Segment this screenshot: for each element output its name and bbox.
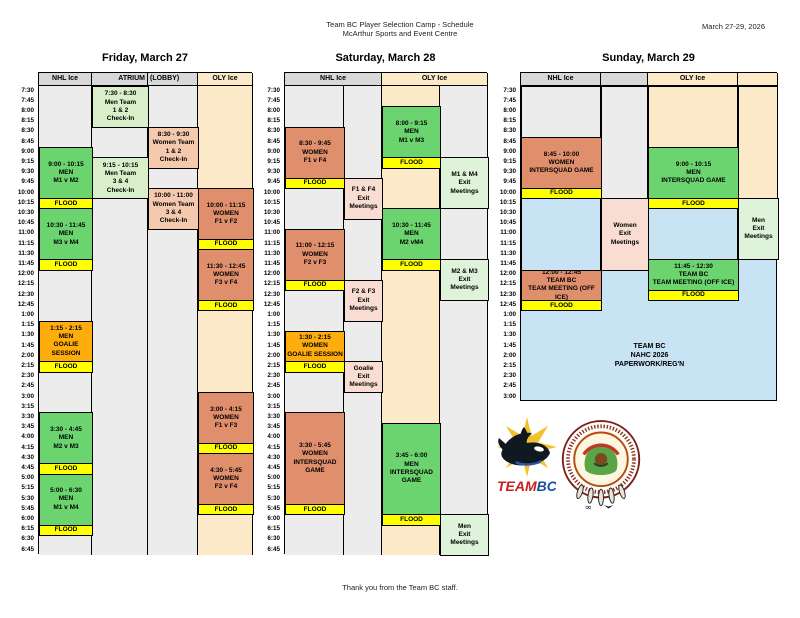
time-label: 9:30 <box>259 167 280 177</box>
time-label: 7:30 <box>495 85 516 95</box>
day-title-sunday: Sunday, March 29 <box>480 52 800 64</box>
time-label: 2:45 <box>13 381 34 391</box>
schedule-block: MenExitMeetings <box>440 514 489 556</box>
schedule-block: 5:00 - 6:30MENM1 v M4 <box>39 474 93 526</box>
time-label: 2:15 <box>13 360 34 370</box>
time-label: 10:45 <box>495 218 516 228</box>
time-label: 2:15 <box>495 360 516 370</box>
time-label: 3:00 <box>495 391 516 401</box>
time-label: 4:45 <box>259 462 280 472</box>
time-label: 3:45 <box>259 422 280 432</box>
schedule-block: 10:30 - 11:45MENM2 vM4 <box>382 208 441 260</box>
schedule-block: GoalieExitMeetings <box>344 361 383 393</box>
time-label: 1:00 <box>259 309 280 319</box>
time-label: 9:45 <box>259 177 280 187</box>
schedule-block: 9:00 - 10:15MENINTERSQUAD GAME <box>648 147 739 199</box>
time-label: 6:45 <box>259 544 280 554</box>
time-label: 10:00 <box>13 187 34 197</box>
time-label-column: 7:307:458:008:158:308:459:009:159:309:45… <box>497 85 518 401</box>
time-label: 5:45 <box>13 503 34 513</box>
nation-crest-logo-icon: ∞ <box>558 419 644 511</box>
time-label: 3:45 <box>13 422 34 432</box>
time-label: 8:45 <box>495 136 516 146</box>
schedule-block: 8:30 - 9:45WOMENF1 v F4 <box>285 127 345 179</box>
time-label: 12:30 <box>259 289 280 299</box>
time-label: 5:30 <box>13 493 34 503</box>
time-label: 9:00 <box>259 146 280 156</box>
schedule-block: 10:00 - 11:00Women Team3 & 4Check-In <box>148 188 199 230</box>
schedule-block: 9:15 - 10:15Men Team3 & 4Check-In <box>92 157 149 199</box>
time-label: 4:30 <box>13 452 34 462</box>
time-label: 8:00 <box>259 105 280 115</box>
time-label: 8:15 <box>13 116 34 126</box>
time-label: 1:15 <box>13 320 34 330</box>
time-label: 7:30 <box>259 85 280 95</box>
time-label: 5:30 <box>259 493 280 503</box>
time-label: 10:15 <box>495 197 516 207</box>
time-label: 8:30 <box>259 126 280 136</box>
time-label: 10:30 <box>13 207 34 217</box>
schedule-block: 11:00 - 12:15WOMENF2 v F3 <box>285 229 345 281</box>
day-panel-friday: NHL IceATRIUM(LOBBY)OLY Ice7:30 - 8:30Me… <box>38 72 252 554</box>
time-label: 9:15 <box>259 156 280 166</box>
time-label: 11:45 <box>13 258 34 268</box>
flood-block: FLOOD <box>285 504 345 515</box>
time-label: 9:00 <box>495 146 516 156</box>
time-label: 11:15 <box>13 238 34 248</box>
schedule-block: 8:30 - 9:30Women Team1 & 2Check-In <box>148 127 199 169</box>
time-label: 2:00 <box>495 350 516 360</box>
teambc-wordmark: TEAMBC <box>497 478 556 494</box>
schedule-block: 8:45 - 10:00WOMENINTERSQUAD GAME <box>521 137 602 189</box>
flood-block: FLOOD <box>198 504 254 515</box>
time-label: 4:00 <box>13 432 34 442</box>
flood-block: FLOOD <box>648 290 739 301</box>
time-label: 10:15 <box>259 197 280 207</box>
time-label: 11:15 <box>259 238 280 248</box>
time-label: 1:45 <box>495 340 516 350</box>
flood-block: FLOOD <box>39 361 93 372</box>
schedule-block: F2 & F3ExitMeetings <box>344 280 383 322</box>
time-label: 11:45 <box>495 258 516 268</box>
time-label: 3:30 <box>259 411 280 421</box>
time-label: 4:00 <box>259 432 280 442</box>
time-label: 8:15 <box>259 116 280 126</box>
time-label: 11:45 <box>259 258 280 268</box>
time-label: 12:15 <box>13 279 34 289</box>
background-segment <box>738 86 778 199</box>
schedule-block: 3:30 - 5:45WOMENINTERSQUADGAME <box>285 412 345 505</box>
schedule-block: 9:00 - 10:15MENM1 v M2 <box>39 147 93 199</box>
column-header: NHL Ice <box>285 73 382 86</box>
time-label-column: 7:307:458:008:158:308:459:009:159:309:45… <box>261 85 282 554</box>
schedule-block: M1 & M4ExitMeetings <box>440 157 489 209</box>
column-header: OLY Ice <box>198 73 253 86</box>
background-segment <box>521 198 601 270</box>
time-label: 1:30 <box>495 330 516 340</box>
schedule-block: 1:30 - 2:15WOMENGOALIE SESSION <box>285 331 345 363</box>
time-label: 12:15 <box>259 279 280 289</box>
time-label: 5:15 <box>259 483 280 493</box>
background-segment <box>648 86 738 148</box>
column-header: OLY Ice <box>382 73 488 86</box>
schedule-page: Team BC Player Selection Camp - Schedule… <box>0 0 800 618</box>
column-header: (LOBBY) <box>148 73 198 86</box>
time-label: 10:30 <box>495 207 516 217</box>
column-header: OLY Ice <box>648 73 738 86</box>
flood-block: FLOOD <box>382 157 441 168</box>
background-segment <box>521 86 601 138</box>
time-label: 3:15 <box>259 401 280 411</box>
time-label-column: 7:307:458:008:158:308:459:009:159:309:45… <box>15 85 36 554</box>
time-label: 11:30 <box>13 248 34 258</box>
column-header: NHL Ice <box>39 73 92 86</box>
time-label: 2:45 <box>259 381 280 391</box>
time-label: 6:30 <box>13 534 34 544</box>
time-label: 10:00 <box>259 187 280 197</box>
column-header: ATRIUM <box>92 73 148 86</box>
time-label: 3:30 <box>13 411 34 421</box>
time-label: 10:30 <box>259 207 280 217</box>
time-label: 3:00 <box>13 391 34 401</box>
schedule-block: WomenExitMeetings <box>601 198 649 270</box>
grid-column <box>92 86 148 555</box>
day-panel-saturday: NHL IceOLY Ice8:00 - 9:15MENM1 v M38:30 … <box>284 72 487 554</box>
time-label: 1:15 <box>259 320 280 330</box>
time-label: 8:30 <box>495 126 516 136</box>
time-label: 8:15 <box>495 116 516 126</box>
time-label: 8:00 <box>13 105 34 115</box>
time-label: 11:00 <box>495 228 516 238</box>
svg-text:∞: ∞ <box>585 503 592 511</box>
time-label: 7:45 <box>13 95 34 105</box>
time-label: 1:45 <box>13 340 34 350</box>
time-label: 3:00 <box>259 391 280 401</box>
time-label: 8:30 <box>13 126 34 136</box>
time-label: 7:45 <box>495 95 516 105</box>
time-label: 12:30 <box>495 289 516 299</box>
time-label: 4:30 <box>259 452 280 462</box>
time-label: 10:00 <box>495 187 516 197</box>
schedule-block: 4:30 - 5:45WOMENF2 v F4 <box>198 453 254 505</box>
time-label: 1:45 <box>259 340 280 350</box>
flood-block: FLOOD <box>521 300 602 311</box>
schedule-block: 10:00 - 11:15WOMENF1 v F2 <box>198 188 254 240</box>
schedule-block: 11:30 - 12:45WOMENF3 v F4 <box>198 249 254 301</box>
time-label: 9:45 <box>495 177 516 187</box>
flood-block: FLOOD <box>382 514 441 525</box>
time-label: 5:45 <box>259 503 280 513</box>
time-label: 10:15 <box>13 197 34 207</box>
time-label: 12:00 <box>13 269 34 279</box>
teambc-logo-icon: TEAMBC <box>494 417 556 495</box>
time-label: 2:30 <box>259 371 280 381</box>
time-label: 6:45 <box>13 544 34 554</box>
flood-block: FLOOD <box>648 198 739 209</box>
time-label: 10:45 <box>13 218 34 228</box>
time-label: 1:00 <box>13 309 34 319</box>
time-label: 6:15 <box>259 524 280 534</box>
flood-block: FLOOD <box>285 361 345 372</box>
time-label: 6:00 <box>13 513 34 523</box>
time-label: 6:15 <box>13 524 34 534</box>
schedule-block: 12:00 - 12:45TEAM BCTEAM MEETING (OFF IC… <box>521 270 602 302</box>
time-label: 12:45 <box>259 299 280 309</box>
day-panel-sunday: NHL IceOLY Ice8:45 - 10:00WOMENINTERSQUA… <box>520 72 777 401</box>
time-label: 11:15 <box>495 238 516 248</box>
schedule-block: 11:45 - 12:30TEAM BCTEAM MEETING (OFF IC… <box>648 259 739 291</box>
time-label: 4:15 <box>13 442 34 452</box>
column-header <box>601 73 648 86</box>
time-label: 12:15 <box>495 279 516 289</box>
flood-block: FLOOD <box>285 280 345 291</box>
schedule-block: M2 & M3ExitMeetings <box>440 259 489 301</box>
time-label: 1:30 <box>259 330 280 340</box>
document-title-line2: McArthur Sports and Event Centre <box>200 29 600 38</box>
schedule-block: 7:30 - 8:30Men Team1 & 2Check-In <box>92 86 149 128</box>
column-header: NHL Ice <box>521 73 601 86</box>
background-segment <box>601 86 648 199</box>
time-label: 7:30 <box>13 85 34 95</box>
schedule-block: 10:30 - 11:45MENM3 v M4 <box>39 208 93 260</box>
time-label: 7:45 <box>259 95 280 105</box>
time-label: 4:45 <box>13 462 34 472</box>
flood-block: FLOOD <box>39 525 93 536</box>
flood-block: FLOOD <box>198 300 254 311</box>
footer-note: Thank you from the Team BC staff. <box>250 583 550 592</box>
time-label: 5:00 <box>259 473 280 483</box>
time-label: 12:30 <box>13 289 34 299</box>
time-label: 5:15 <box>13 483 34 493</box>
time-label: 2:00 <box>259 350 280 360</box>
schedule-block: 3:45 - 6:00MENINTERSQUADGAME <box>382 423 441 516</box>
time-label: 3:15 <box>13 401 34 411</box>
time-label: 11:30 <box>259 248 280 258</box>
column-header <box>738 73 778 86</box>
flood-block: FLOOD <box>382 259 441 270</box>
time-label: 2:30 <box>495 371 516 381</box>
time-label: 9:45 <box>13 177 34 187</box>
schedule-block: F1 & F4ExitMeetings <box>344 178 383 220</box>
time-label: 1:15 <box>495 320 516 330</box>
time-label: 9:15 <box>495 156 516 166</box>
time-label: 4:15 <box>259 442 280 452</box>
schedule-block: MenExitMeetings <box>738 198 779 260</box>
time-label: 2:30 <box>13 371 34 381</box>
time-label: 12:00 <box>259 269 280 279</box>
time-label: 2:45 <box>495 381 516 391</box>
time-label: 1:00 <box>495 309 516 319</box>
time-label: 9:30 <box>495 167 516 177</box>
flood-block: FLOOD <box>521 188 602 199</box>
time-label: 11:00 <box>13 228 34 238</box>
time-label: 11:30 <box>495 248 516 258</box>
time-label: 8:00 <box>495 105 516 115</box>
schedule-block: 3:30 - 4:45MENM2 v M3 <box>39 412 93 464</box>
time-label: 5:00 <box>13 473 34 483</box>
document-title-line1: Team BC Player Selection Camp - Schedule <box>200 20 600 29</box>
document-date-range: March 27-29, 2026 <box>640 22 765 31</box>
time-label: 8:45 <box>259 136 280 146</box>
time-label: 2:15 <box>259 360 280 370</box>
document-title: Team BC Player Selection Camp - Schedule… <box>200 20 600 38</box>
grid-column <box>440 86 488 555</box>
background-segment <box>648 208 738 260</box>
time-label: 12:45 <box>495 299 516 309</box>
time-label: 9:15 <box>13 156 34 166</box>
time-label: 8:45 <box>13 136 34 146</box>
time-label: 6:30 <box>259 534 280 544</box>
time-label: 11:00 <box>259 228 280 238</box>
schedule-block: 1:15 - 2:15MENGOALIE SESSION <box>39 321 93 363</box>
time-label: 9:30 <box>13 167 34 177</box>
time-label: 1:30 <box>13 330 34 340</box>
time-label: 12:00 <box>495 269 516 279</box>
time-label: 10:45 <box>259 218 280 228</box>
flood-block: FLOOD <box>285 178 345 189</box>
time-label: 6:00 <box>259 513 280 523</box>
schedule-block: 8:00 - 9:15MENM1 v M3 <box>382 106 441 158</box>
time-label: 12:45 <box>13 299 34 309</box>
time-label: 9:00 <box>13 146 34 156</box>
schedule-block: TEAM BCNAHC 2026PAPERWORK/REG'N <box>521 331 778 383</box>
schedule-block: 3:00 - 4:15WOMENF1 v F3 <box>198 392 254 444</box>
flood-block: FLOOD <box>39 259 93 270</box>
time-label: 2:00 <box>13 350 34 360</box>
